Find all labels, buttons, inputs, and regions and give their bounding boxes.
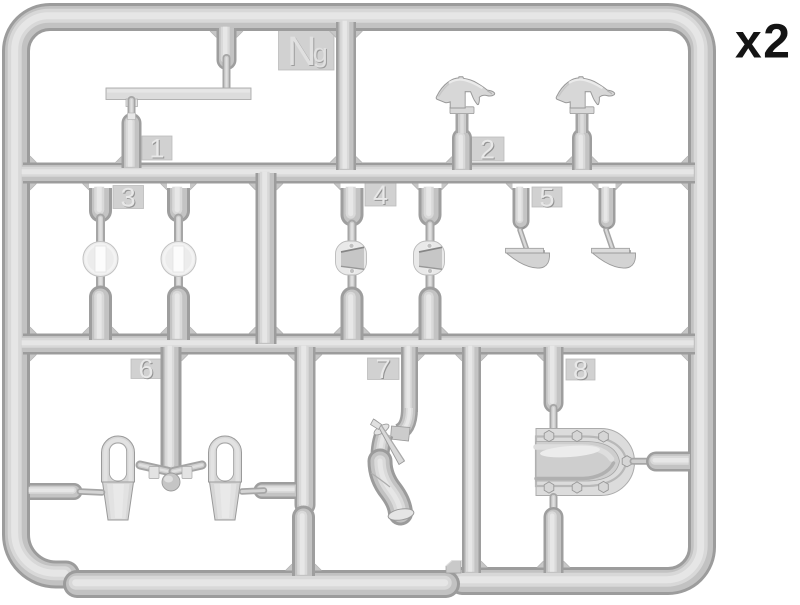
svg-text:5: 5: [539, 183, 554, 213]
svg-text:2: 2: [480, 135, 495, 165]
svg-text:6: 6: [138, 354, 153, 384]
svg-text:g: g: [313, 38, 328, 68]
svg-text:4: 4: [373, 180, 388, 210]
svg-text:7: 7: [376, 354, 391, 384]
svg-text:8: 8: [573, 355, 588, 385]
svg-text:3: 3: [121, 183, 136, 213]
svg-text:1: 1: [149, 134, 164, 164]
svg-text:x2: x2: [735, 16, 791, 69]
